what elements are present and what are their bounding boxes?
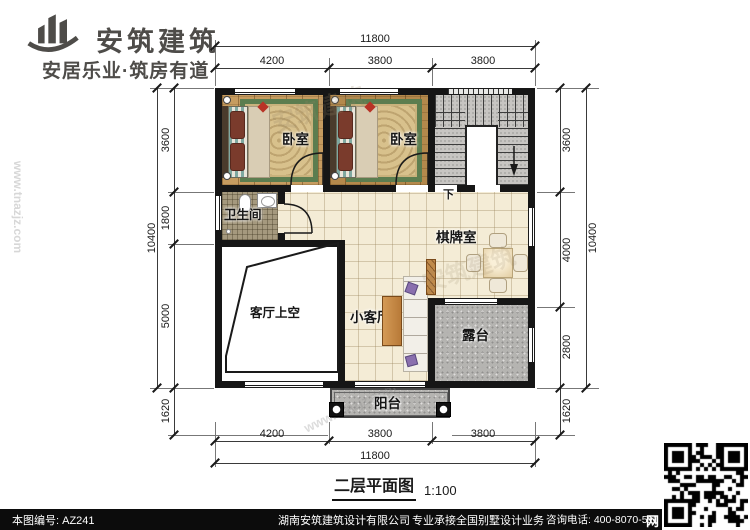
dim-label: 4200: [250, 55, 294, 67]
chair: [466, 254, 481, 272]
dim-label: 3600: [160, 118, 172, 162]
wall: [500, 185, 528, 192]
dim-label: 4000: [561, 228, 573, 272]
chair: [489, 278, 507, 293]
dim-label: 3800: [358, 55, 402, 67]
footer-bar: 本图编号: AZ241 湖南安筑建筑设计有限公司 专业承接全国别墅设计业务 咨询…: [0, 509, 750, 530]
dim-label: 4200: [250, 428, 294, 440]
room-label-bathroom: 卫生间: [224, 204, 262, 223]
wall: [428, 88, 435, 192]
room-label-bedroom2: 卧室: [390, 128, 417, 148]
window: [445, 298, 497, 305]
window: [235, 88, 295, 95]
window: [528, 328, 535, 362]
pillow: [230, 143, 245, 171]
wall-tag-icon: [223, 172, 231, 180]
stair-void: [465, 125, 498, 185]
pillow: [338, 111, 353, 139]
cabinet: [426, 259, 436, 295]
stair-window: [448, 88, 512, 95]
dimension-line: [215, 68, 535, 69]
wall: [278, 192, 285, 204]
wall-tag-icon: [331, 172, 339, 180]
balcony-column: [329, 402, 344, 417]
stair-down-label: 下: [443, 186, 454, 202]
floor-drain: [226, 229, 231, 234]
dimension-line: [174, 88, 175, 435]
room-label-chess: 棋牌室: [436, 226, 477, 246]
drawing-title-text: 二层平面图: [332, 472, 416, 501]
stair-flight-right: [498, 110, 528, 185]
service-text: 专业承接全国别墅设计业务: [412, 512, 544, 528]
chair: [513, 254, 528, 272]
dim-label: 3800: [461, 55, 505, 67]
qr-code: [664, 443, 748, 527]
extension-line: [432, 58, 433, 86]
window: [245, 381, 323, 388]
extension-line: [329, 58, 330, 86]
dim-label: 11800: [353, 33, 397, 45]
dim-label: 1620: [561, 389, 573, 433]
dim-label: 1800: [160, 196, 172, 240]
pillow: [338, 143, 353, 171]
room-label-balcony: 阳台: [374, 392, 401, 412]
wall: [215, 88, 222, 388]
dimension-line: [215, 463, 535, 464]
window: [340, 88, 398, 95]
dim-label: 3800: [461, 428, 505, 440]
phone-text: 咨询电话: 400-8070-511: [546, 512, 658, 527]
builder-logo-icon: [24, 6, 82, 62]
drawing-scale: 1:100: [424, 483, 457, 501]
bed-mattress: [248, 106, 270, 178]
brand-name: 安筑建筑: [96, 20, 220, 59]
balcony-door: [355, 381, 425, 388]
room-label-living-void: 客厅上空: [250, 302, 300, 321]
dim-label: 10400: [587, 216, 599, 260]
dimension-line: [215, 441, 535, 442]
game-table: [483, 248, 513, 278]
room-label-bedroom1: 卧室: [282, 128, 309, 148]
dim-label: 3800: [358, 428, 402, 440]
brand-tagline: 安居乐业·筑房有道: [42, 56, 209, 83]
wall: [330, 185, 396, 192]
extension-line: [150, 88, 214, 89]
wall: [457, 185, 475, 192]
room-label-terrace: 露台: [462, 324, 489, 344]
balcony-column: [436, 402, 451, 417]
dim-label: 10400: [146, 216, 158, 260]
wall: [338, 240, 345, 388]
company-name: 湖南安筑建筑设计有限公司: [278, 512, 410, 528]
coffee-table: [382, 296, 402, 346]
sheet: 安筑建筑 安居乐业·筑房有道 安筑建筑 安筑建筑 www.tnazjz.com …: [0, 0, 750, 530]
pillow: [230, 111, 245, 139]
logo-block: 安筑建筑 安居乐业·筑房有道: [18, 4, 248, 84]
wall: [323, 88, 330, 192]
bed-mattress: [356, 106, 378, 178]
window: [528, 208, 535, 246]
extension-line: [537, 88, 599, 89]
dim-label: 2800: [561, 325, 573, 369]
window: [215, 196, 222, 230]
wall: [215, 185, 291, 192]
drawing-title: 二层平面图 1:100: [332, 472, 457, 501]
chair: [489, 233, 507, 248]
watermark-url: www.tnazjz.com: [11, 161, 25, 253]
wall: [215, 240, 345, 247]
dim-label: 3600: [561, 118, 573, 162]
dimension-line: [215, 46, 535, 47]
dim-label: 11800: [353, 450, 397, 462]
qr-code-box: [662, 440, 750, 530]
dim-label: 1620: [160, 389, 172, 433]
stair-flight-left: [435, 110, 465, 185]
drawing-number: 本图编号: AZ241: [12, 512, 95, 528]
dim-label: 5000: [160, 294, 172, 338]
wall-tag-icon: [223, 96, 231, 104]
wall: [428, 298, 435, 388]
sink-basin: [261, 196, 275, 207]
web-char: 网: [646, 511, 659, 530]
wall-tag-icon: [331, 96, 339, 104]
extension-line: [168, 435, 328, 436]
